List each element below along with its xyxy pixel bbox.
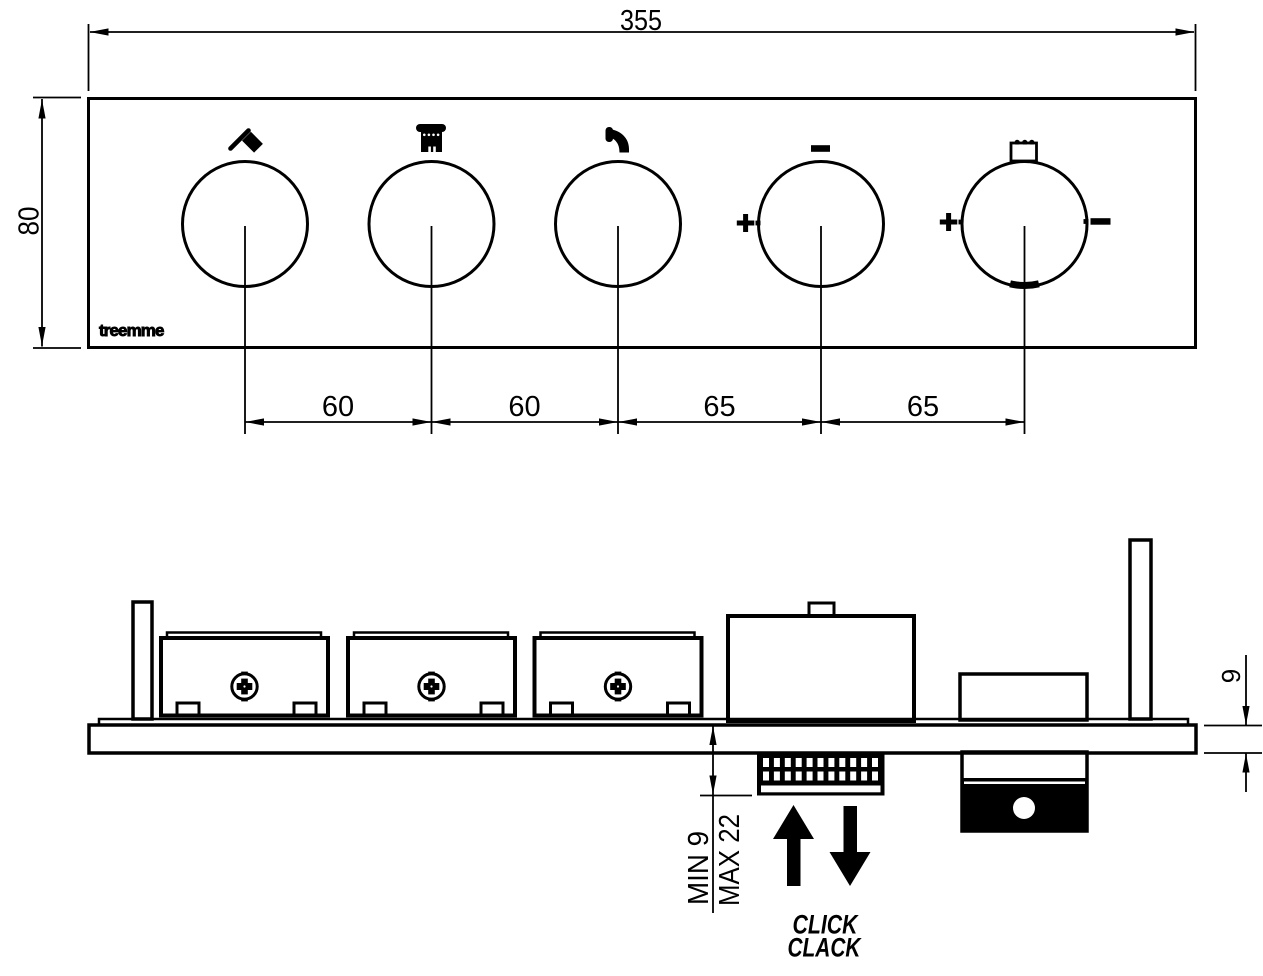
svg-text:355: 355 [620, 5, 662, 37]
svg-text:60: 60 [322, 391, 354, 423]
svg-text:MAX 22: MAX 22 [714, 814, 746, 906]
svg-text:60: 60 [508, 391, 540, 423]
svg-text:MIN 9: MIN 9 [683, 831, 715, 905]
svg-text:65: 65 [907, 391, 939, 423]
svg-text:80: 80 [14, 207, 46, 236]
svg-text:65: 65 [703, 391, 735, 423]
svg-text:treemme: treemme [99, 321, 164, 340]
svg-text:9: 9 [1216, 669, 1246, 683]
svg-text:CLACK: CLACK [788, 933, 863, 963]
